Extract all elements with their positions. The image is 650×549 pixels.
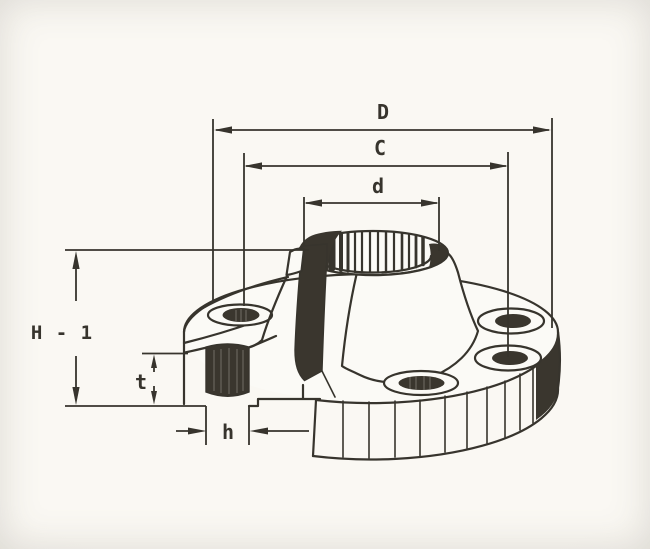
rim-left-edge [313,400,316,456]
dim-label-t: t [135,370,147,394]
arrowhead-left-icon [250,428,269,435]
dim-label-d: d [372,174,384,198]
dimension-t: t [135,354,188,405]
dim-label-D: D [377,100,389,124]
flange-technical-drawing: D C d H - 1 [0,0,650,549]
bolt-hole-left [208,305,272,326]
drawing-page: D C d H - 1 [0,0,650,549]
arrowhead-up-icon [151,355,157,369]
dimension-h: h [176,420,309,444]
arrowhead-down-icon [151,391,157,405]
bolt-hole-upper-right [478,309,544,334]
arrowhead-left-icon [244,162,262,169]
dim-label-h: h [222,420,234,444]
arrowhead-right-icon [421,199,439,206]
arrowhead-left-icon [214,126,232,133]
arrowhead-right-icon [490,162,508,169]
arrowhead-up-icon [72,251,79,269]
neck-cut-lip [287,249,305,275]
dim-label-C: C [374,136,386,160]
arrowhead-left-icon [304,199,322,206]
dim-label-H1: H - 1 [31,322,93,344]
arrowhead-right-icon [533,126,551,133]
arrowhead-right-icon [188,428,207,435]
arrowhead-down-icon [72,387,79,405]
bolt-hole-front [384,371,458,395]
